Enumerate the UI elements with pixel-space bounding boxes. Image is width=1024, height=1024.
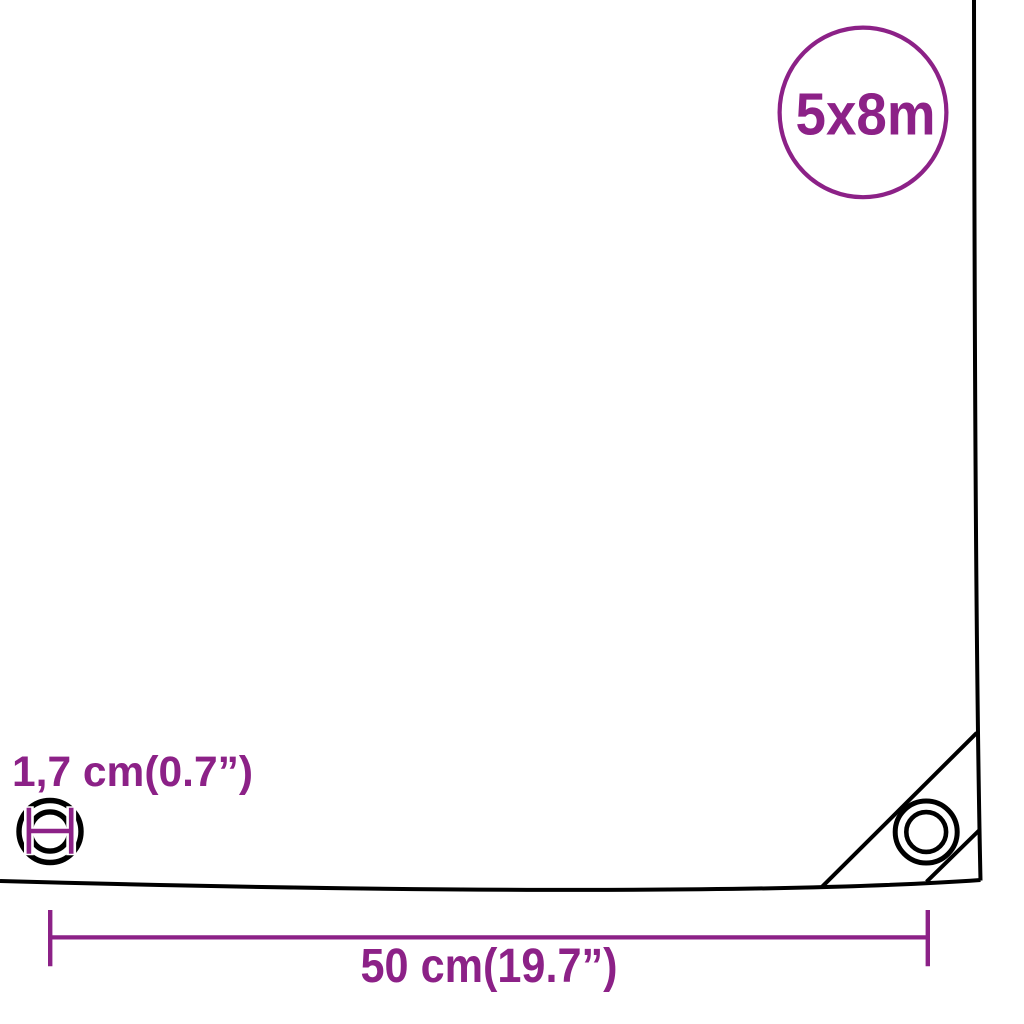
svg-text:5x8m: 5x8m bbox=[796, 81, 936, 148]
svg-text:1,7 cm(0.7”): 1,7 cm(0.7”) bbox=[12, 748, 253, 795]
svg-text:50 cm(19.7”): 50 cm(19.7”) bbox=[361, 940, 618, 993]
